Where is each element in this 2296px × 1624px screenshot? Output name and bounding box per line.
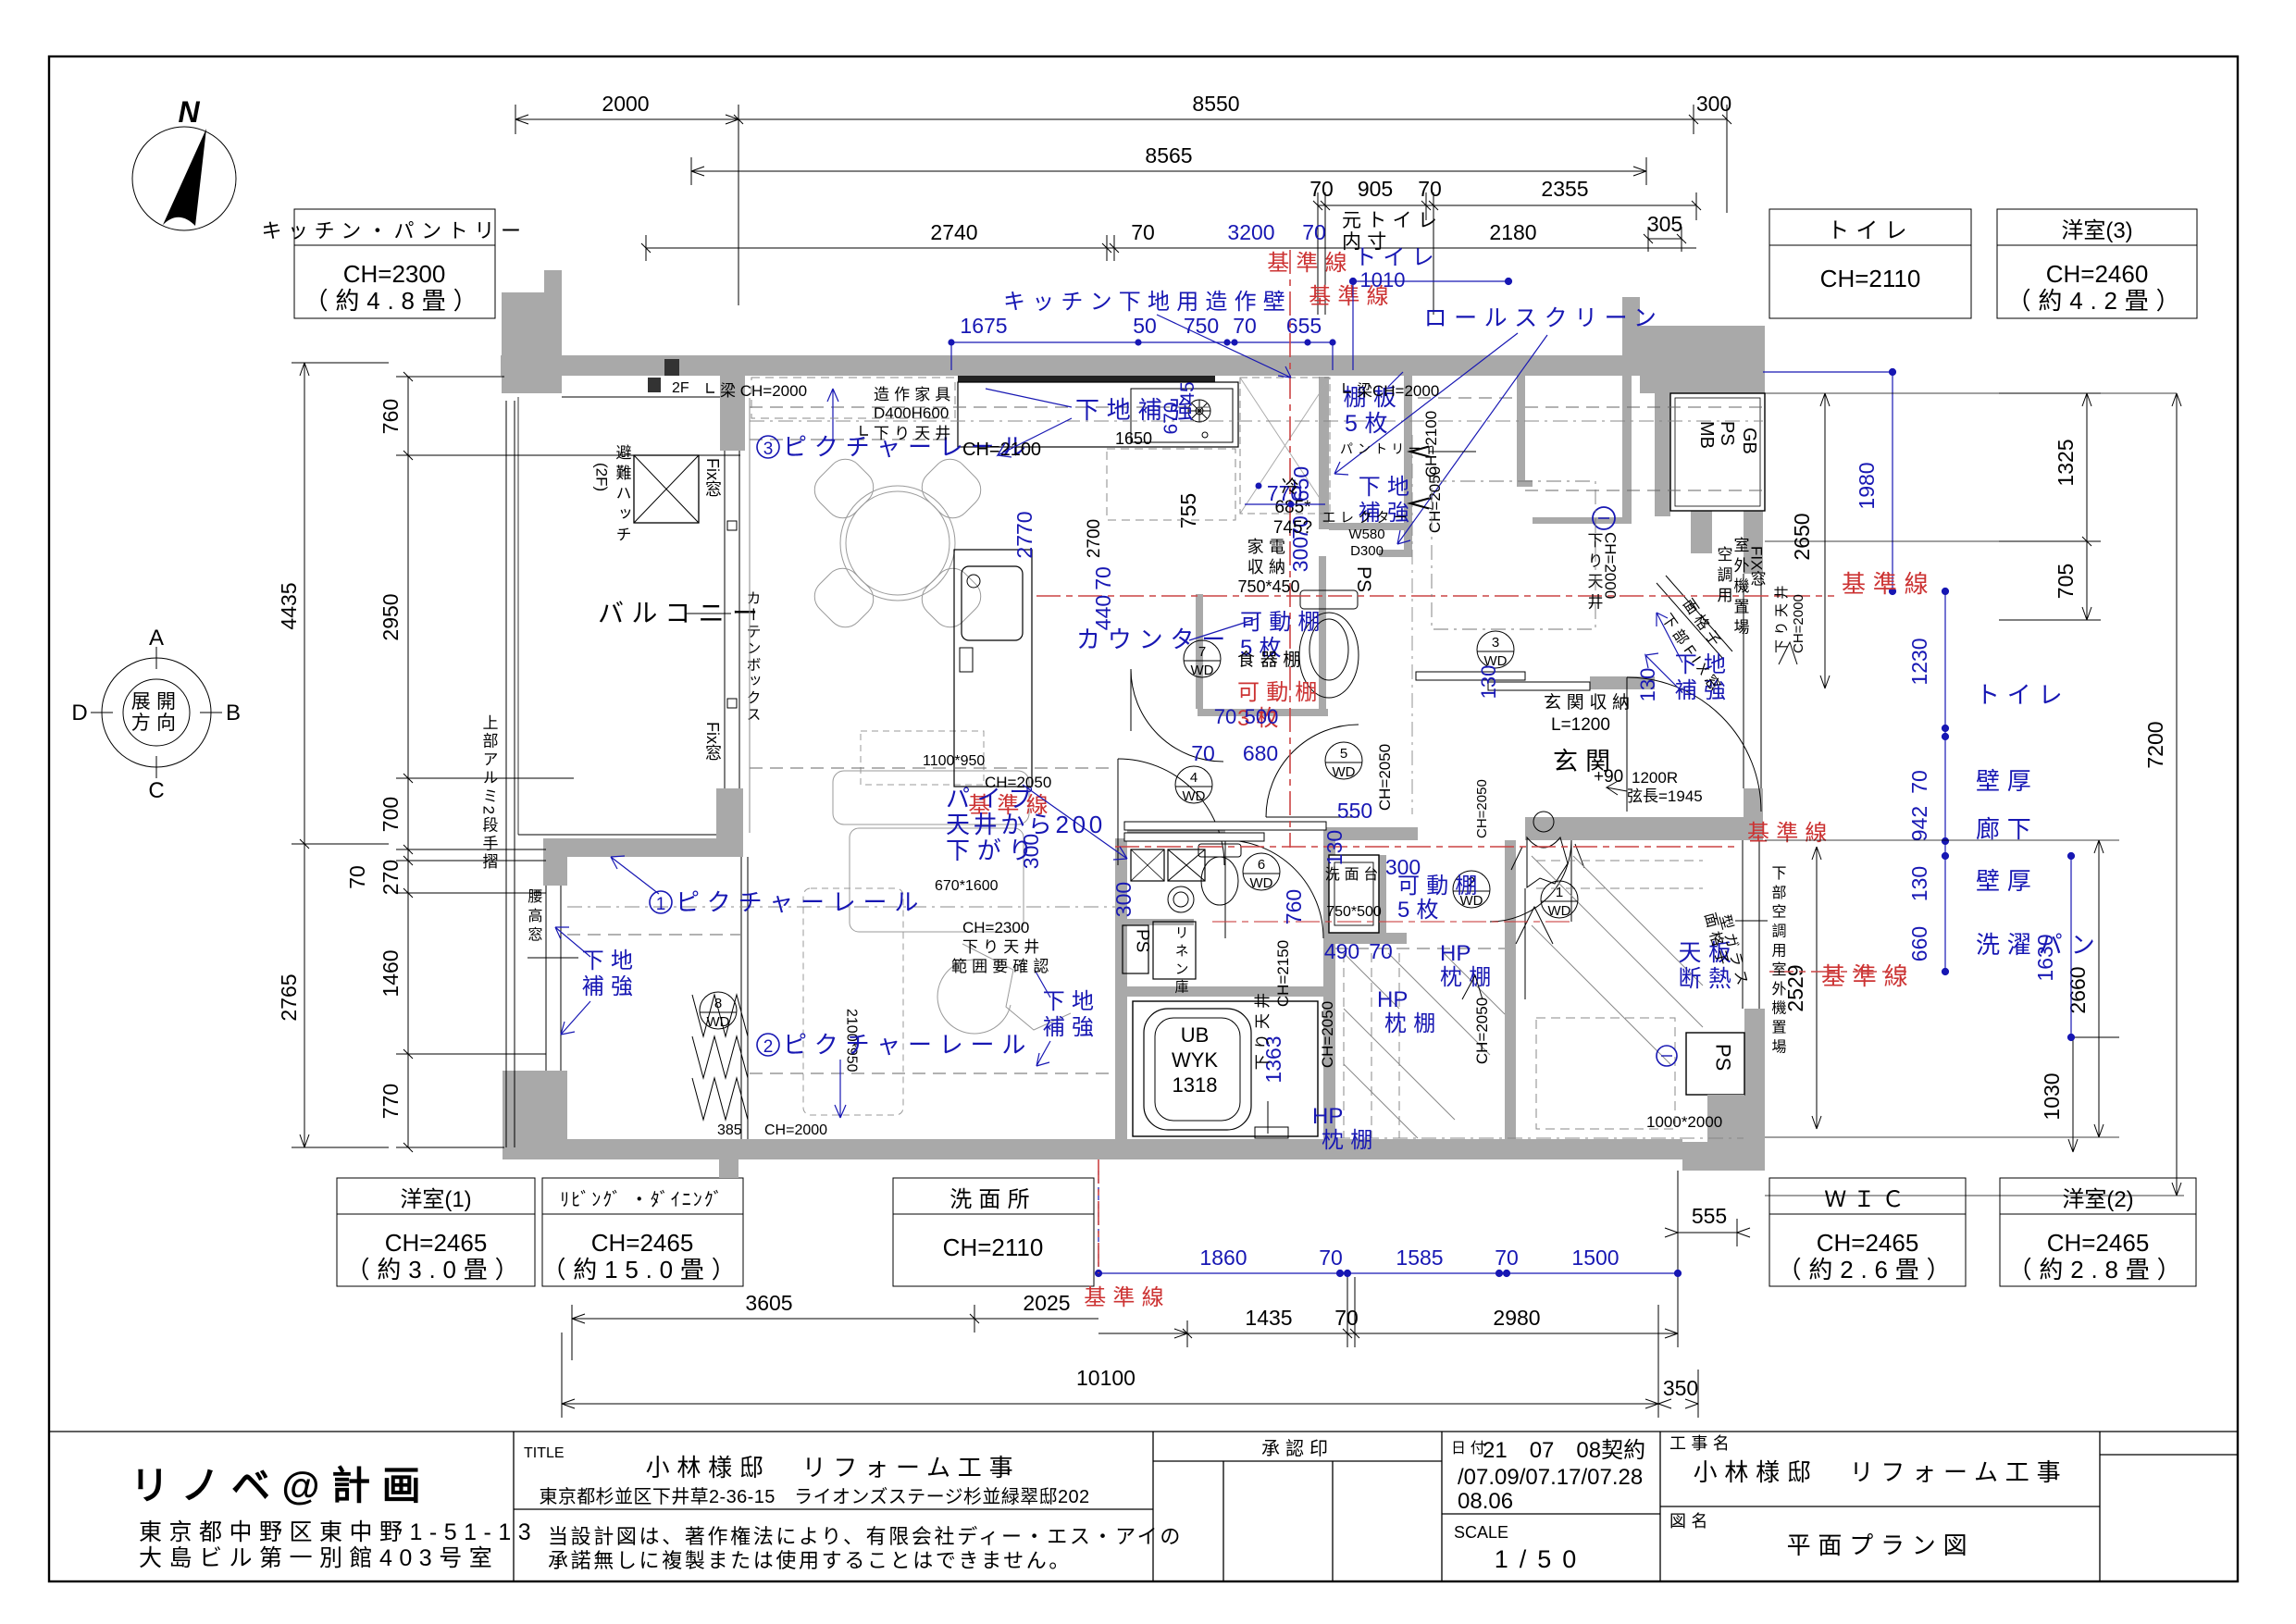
svg-text:玄関収納: 玄関収納 [1544,692,1635,713]
svg-text:トイレ: トイレ [1827,218,1914,243]
svg-text:ピクチャーレール: ピクチャーレール [783,1031,1033,1059]
svg-text:CH=2465: CH=2465 [591,1229,694,1257]
svg-text:70: 70 [1907,770,1931,794]
svg-text:食器棚: 食器棚 [1237,650,1306,670]
svg-text:6: 6 [1258,857,1265,873]
svg-text:L=1200: L=1200 [1551,715,1610,735]
svg-text:660: 660 [1907,926,1931,961]
svg-text:収納: 収納 [1247,558,1291,576]
svg-text:5枚: 5枚 [1345,411,1395,437]
svg-text:下地: 下地 [582,948,639,973]
svg-text:パントリー: パントリー [1340,441,1425,456]
svg-text:1: 1 [656,895,666,914]
svg-text:1030: 1030 [2040,1072,2064,1120]
svg-text:壁厚: 壁厚 [1976,867,2039,895]
svg-text:B: B [226,700,241,725]
svg-text:2: 2 [763,1037,774,1057]
svg-text:2765: 2765 [277,973,301,1021]
svg-text:CH=2150: CH=2150 [1274,940,1292,1007]
svg-text:WD: WD [1333,764,1356,780]
svg-text:PS: PS [1353,566,1374,592]
svg-text:洗面台: 洗面台 [1325,866,1383,883]
svg-text:下り天井: 下り天井 [1585,532,1604,614]
svg-text:洗濯パン: 洗濯パン [1976,931,2103,959]
svg-text:2980: 2980 [1493,1306,1540,1330]
svg-text:Fix窓: Fix窓 [703,722,722,761]
svg-text:承認印: 承認印 [1261,1438,1334,1459]
svg-text:C: C [148,778,164,803]
svg-text:745?: 745? [1273,518,1312,538]
svg-text:8565: 8565 [1145,143,1192,167]
svg-text:Fix窓: Fix窓 [703,458,722,497]
svg-text:承諾無しに複製または使用することはできません。: 承諾無しに複製または使用することはできません。 [548,1549,1072,1572]
svg-text:WD: WD [1183,788,1206,804]
svg-text:CH=2000: CH=2000 [764,1122,827,1138]
svg-text:+90: +90 [1594,767,1623,787]
svg-text:CH=2050: CH=2050 [985,774,1051,791]
svg-text:4: 4 [1190,770,1198,786]
svg-text:PS: PS [1133,929,1152,952]
svg-text:70: 70 [1309,177,1334,201]
svg-text:2660: 2660 [2066,966,2090,1013]
svg-text:305: 305 [1647,212,1682,236]
svg-text:CH=2050: CH=2050 [1319,1001,1336,1068]
svg-text:下り天井: 下り天井 [962,938,1044,956]
svg-text:トイレ: トイレ [1976,681,2069,709]
svg-text:3200: 3200 [1227,220,1274,244]
svg-text:キッチン下地用造作壁: キッチン下地用造作壁 [1003,290,1292,315]
svg-text:造作家具: 造作家具 [874,386,955,403]
svg-text:1/50: 1/50 [1495,1545,1588,1573]
svg-text:270: 270 [379,860,403,895]
svg-text:UB: UB [1181,1023,1210,1047]
svg-text:リノベ@計画: リノベ@計画 [130,1464,433,1507]
svg-text:WD: WD [1250,875,1273,891]
svg-text:平面プラン図: 平面プラン図 [1787,1531,1975,1559]
svg-text:可動棚: 可動棚 [1397,874,1484,899]
svg-text:1500: 1500 [1571,1246,1619,1270]
svg-text:補強: 補強 [1043,1015,1100,1040]
svg-text:CH=2000: CH=2000 [1602,532,1620,599]
svg-text:2650: 2650 [1790,513,1814,560]
svg-text:130: 130 [1636,668,1659,702]
svg-text:CH=2000: CH=2000 [1791,594,1806,653]
svg-text:755: 755 [1176,493,1200,528]
svg-text:2740: 2740 [930,220,977,244]
svg-text:/07.09/07.17/07.28: /07.09/07.17/07.28 [1458,1465,1643,1490]
svg-text:東京都杉並区下井草2-36-15 ライオンズステージ杉並緑翠: 東京都杉並区下井草2-36-15 ライオンズステージ杉並緑翠邸202 [539,1486,1089,1507]
svg-text:700: 700 [379,797,403,832]
svg-text:350: 350 [1663,1376,1698,1400]
svg-text:750*450: 750*450 [1237,577,1299,596]
svg-text:D: D [71,700,87,725]
svg-text:（約15.0畳）: （約15.0畳） [541,1256,742,1283]
svg-text:2770: 2770 [1012,511,1036,558]
svg-text:1980: 1980 [1855,462,1879,509]
svg-text:685*: 685* [1274,498,1311,517]
svg-text:1585: 1585 [1396,1246,1443,1270]
svg-text:490: 490 [1324,939,1359,963]
svg-text:ﾘﾋﾞﾝｸﾞ ・ﾀﾞｲﾆﾝｸﾞ: ﾘﾋﾞﾝｸﾞ ・ﾀﾞｲﾆﾝｸﾞ [560,1189,725,1210]
svg-text:670*1600: 670*1600 [935,878,999,894]
svg-text:760: 760 [379,399,403,434]
svg-text:TITLE: TITLE [524,1445,565,1461]
svg-text:70: 70 [1319,1246,1343,1270]
svg-text:HP: HP [1312,1104,1343,1129]
svg-text:CH=2050: CH=2050 [1376,744,1394,811]
svg-text:8550: 8550 [1192,92,1239,116]
svg-text:CH=2465: CH=2465 [1817,1229,1919,1257]
svg-text:（約4.2畳）: （約4.2畳） [2007,287,2188,315]
svg-text:300: 300 [1696,92,1731,116]
svg-text:D300: D300 [1350,543,1384,559]
svg-text:942: 942 [1907,806,1931,841]
svg-text:655: 655 [1286,314,1322,338]
svg-text:WYK: WYK [1172,1048,1218,1072]
svg-text:可動棚: 可動棚 [1240,610,1327,635]
svg-text:枕棚: 枕棚 [1322,1128,1379,1153]
svg-text:枕棚: 枕棚 [1384,1011,1442,1036]
svg-text:70: 70 [345,865,369,889]
svg-text:上部アルミ2段手摺: 上部アルミ2段手摺 [480,714,499,872]
svg-text:壁厚: 壁厚 [1976,767,2039,795]
svg-text:当設計図は、著作権法により、有限会社ディー・エス・アイの: 当設計図は、著作権法により、有限会社ディー・エス・アイの [548,1525,1183,1548]
svg-text:図名: 図名 [1669,1512,1713,1531]
svg-text:HP: HP [1440,941,1471,966]
svg-text:PS: PS [1717,421,1737,446]
svg-text:MB: MB [1696,421,1717,449]
svg-text:70: 70 [1418,177,1442,201]
svg-text:555: 555 [1692,1204,1727,1228]
svg-text:ロールスクリーン: ロールスクリーン [1424,305,1664,331]
svg-text:08.06: 08.06 [1458,1489,1513,1514]
svg-text:弦長=1945: 弦長=1945 [1627,787,1703,805]
svg-text:45: 45 [1177,381,1198,403]
svg-text:（約3.0畳）: （約3.0畳） [346,1256,527,1283]
svg-text:下地: 下地 [1359,475,1416,500]
svg-text:（約2.8畳）: （約2.8畳） [2008,1256,2189,1283]
svg-text:770: 770 [379,1084,403,1119]
svg-text:10100: 10100 [1076,1366,1136,1390]
svg-text:東京都中野区東中野1-51-13: 東京都中野区東中野1-51-13 [139,1519,538,1545]
svg-text:N: N [178,95,200,129]
svg-text:1435: 1435 [1245,1306,1292,1330]
svg-text:下り天井: 下り天井 [874,425,955,442]
svg-text:2180: 2180 [1489,220,1536,244]
svg-text:空調用: 空調用 [1715,546,1733,607]
svg-text:WD: WD [707,1014,730,1030]
svg-text:550: 550 [1337,799,1372,823]
svg-text:50: 50 [1133,314,1157,338]
svg-text:下がり: 下がり [946,837,1039,864]
svg-text:1000*2000: 1000*2000 [1646,1113,1722,1131]
svg-text:CH=2300: CH=2300 [962,919,1029,936]
svg-text:2700: 2700 [1085,519,1104,558]
svg-text:CH=2460: CH=2460 [2046,260,2149,288]
svg-text:CH=2300: CH=2300 [343,260,446,288]
svg-text:エレクター: エレクター [1322,510,1412,526]
svg-text:展開: 展開 [131,691,182,713]
svg-text:705: 705 [2054,564,2078,599]
svg-text:洋室(3): 洋室(3) [2061,218,2132,243]
svg-text:基準線: 基準線 [1309,284,1396,309]
svg-text:バルコニー: バルコニー [598,599,765,627]
svg-text:洋室(1): 洋室(1) [400,1187,471,1212]
svg-text:基準線: 基準線 [1084,1285,1171,1310]
svg-text:1230: 1230 [1907,638,1931,685]
svg-text:2950: 2950 [379,593,403,640]
svg-text:A: A [149,626,164,651]
svg-text:70: 70 [1233,314,1257,338]
svg-text:腰高窓: 腰高窓 [526,888,543,946]
svg-text:W580: W580 [1348,527,1384,542]
svg-text:PS: PS [1712,1044,1735,1071]
svg-text:2000: 2000 [602,92,649,116]
svg-text:補強: 補強 [582,974,639,999]
svg-text:1860: 1860 [1199,1246,1247,1270]
svg-text:385: 385 [717,1122,742,1138]
svg-text:範囲要確認: 範囲要確認 [951,958,1054,975]
svg-text:FIX窓: FIX窓 [1748,546,1767,586]
svg-text:130: 130 [1907,866,1931,901]
svg-text:CH=2050: CH=2050 [1426,466,1444,533]
svg-text:(2F): (2F) [593,463,611,491]
svg-text:750*500: 750*500 [1326,904,1382,920]
svg-text:70: 70 [1091,566,1115,590]
svg-text:元トイレ: 元トイレ [1342,210,1443,231]
svg-text:CH=2465: CH=2465 [2047,1229,2150,1257]
svg-text:基準線: 基準線 [1821,962,1915,990]
svg-text:21 07 08契約: 21 07 08契約 [1483,1438,1645,1463]
svg-text:3605: 3605 [745,1291,792,1315]
svg-text:室外機置場: 室外機置場 [1731,537,1750,639]
svg-text:2355: 2355 [1541,177,1588,201]
svg-text:基準線: 基準線 [1842,570,1935,598]
svg-text:70: 70 [1191,741,1215,765]
svg-text:避難ハッチ: 避難ハッチ [614,444,632,547]
svg-text:天井から200: 天井から200 [946,811,1106,838]
svg-text:1200R: 1200R [1632,769,1678,787]
svg-text:CH=2110: CH=2110 [943,1233,1044,1261]
svg-text:方向: 方向 [131,713,182,734]
svg-text:工事名: 工事名 [1669,1434,1734,1453]
svg-text:（約2.6畳）: （約2.6畳） [1778,1256,1958,1283]
svg-text:300: 300 [1288,537,1312,572]
svg-text:300: 300 [1111,882,1136,917]
svg-text:冷: 冷 [1282,477,1305,497]
svg-text:1318: 1318 [1173,1073,1218,1097]
svg-text:70: 70 [1214,705,1236,728]
svg-text:（約4.8畳）: （約4.8畳） [304,287,485,315]
svg-text:洋室(2): 洋室(2) [2062,1187,2133,1212]
svg-text:可動棚: 可動棚 [1237,680,1324,705]
svg-text:7200: 7200 [2143,721,2167,768]
svg-text:トイレ: トイレ [1354,245,1441,270]
svg-text:キッチン・パントリー: キッチン・パントリー [261,219,527,242]
svg-text:梁CH=2000: 梁CH=2000 [1357,382,1439,400]
svg-text:HP: HP [1377,987,1408,1012]
svg-text:下り天井: 下り天井 [1774,581,1790,653]
svg-text:下り天井: 下り天井 [1254,988,1272,1070]
svg-text:70: 70 [1495,1246,1519,1270]
svg-text:4435: 4435 [277,582,301,629]
svg-text:1675: 1675 [960,314,1007,338]
svg-text:WD: WD [1548,903,1571,919]
svg-text:基準線: 基準線 [1267,251,1354,276]
svg-text:リネン庫: リネン庫 [1173,925,1189,998]
svg-text:3: 3 [763,440,774,459]
svg-text:家電: 家電 [1247,538,1291,556]
svg-text:GB: GB [1739,428,1759,454]
svg-text:5: 5 [1340,746,1347,762]
svg-text:小林様邸 リフォーム工事: 小林様邸 リフォーム工事 [646,1454,1021,1481]
svg-text:CH=2100: CH=2100 [962,440,1041,460]
svg-text:D400H600: D400H600 [874,404,949,422]
svg-text:70: 70 [1131,220,1155,244]
svg-text:1650: 1650 [1115,429,1152,448]
svg-text:760: 760 [1282,889,1306,924]
svg-text:680: 680 [1243,741,1278,765]
svg-text:70: 70 [1302,220,1326,244]
svg-text:1325: 1325 [2054,439,2078,486]
svg-text:70: 70 [1334,1306,1359,1330]
svg-text:大島ビル第一別館403号室: 大島ビル第一別館403号室 [139,1545,499,1571]
svg-text:CH=2050: CH=2050 [1473,998,1491,1064]
svg-text:670: 670 [1160,402,1182,434]
svg-text:130: 130 [1322,830,1347,865]
svg-text:1460: 1460 [379,949,403,997]
svg-text:CH=2110: CH=2110 [1820,265,1921,292]
svg-text:ＷＩＣ: ＷＩＣ [1824,1187,1911,1212]
svg-text:CH=2465: CH=2465 [385,1229,488,1257]
svg-text:905: 905 [1358,177,1393,201]
svg-text:2025: 2025 [1023,1291,1070,1315]
svg-text:下部空調用室外機置場: 下部空調用室外機置場 [1769,865,1787,1058]
svg-text:SCALE: SCALE [1454,1523,1508,1542]
svg-text:廊下: 廊下 [1976,815,2039,843]
svg-text:70: 70 [1369,939,1393,963]
svg-text:基準線: 基準線 [1747,821,1834,846]
svg-text:440: 440 [1091,595,1115,630]
svg-text:750: 750 [1184,314,1219,338]
svg-text:梁 CH=2000: 梁 CH=2000 [720,382,807,400]
svg-text:WD: WD [1191,663,1214,678]
svg-text:ピクチャーレール: ピクチャーレール [676,888,925,916]
svg-text:下地: 下地 [1043,989,1100,1014]
svg-text:3: 3 [1492,635,1499,651]
svg-text:130: 130 [1477,665,1500,700]
svg-text:断熱: 断熱 [1678,966,1738,992]
svg-text:2F: 2F [672,380,689,396]
svg-text:500: 500 [1245,705,1279,728]
svg-text:5枚: 5枚 [1397,898,1446,923]
svg-text:洗面所: 洗面所 [949,1187,1036,1212]
svg-text:CH=2050: CH=2050 [1474,779,1490,838]
svg-text:8: 8 [714,996,722,1011]
svg-text:小林様邸 リフォーム工事: 小林様邸 リフォーム工事 [1694,1458,2068,1486]
svg-text:1: 1 [1556,885,1563,900]
